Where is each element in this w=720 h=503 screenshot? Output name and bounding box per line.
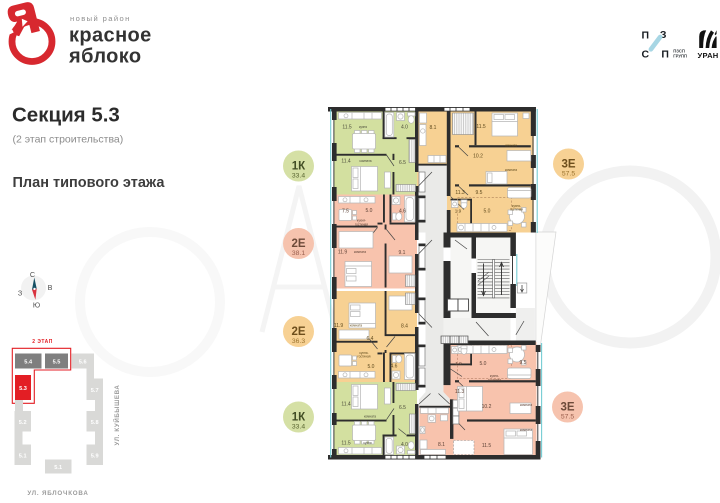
svg-text:4.6: 4.6 [399, 209, 406, 215]
svg-text:1.9: 1.9 [455, 209, 462, 214]
svg-text:6.4: 6.4 [367, 336, 374, 342]
svg-text:гостиная: гостиная [488, 378, 501, 382]
svg-text:5.6: 5.6 [79, 360, 87, 366]
svg-text:яблоко: яблоко [68, 46, 142, 68]
svg-text:9.5: 9.5 [520, 360, 527, 366]
svg-text:5.3: 5.3 [19, 386, 27, 392]
svg-text:1К: 1К [292, 161, 306, 173]
svg-text:5.5: 5.5 [53, 360, 61, 366]
svg-text:5.2: 5.2 [19, 420, 27, 426]
svg-text:1К: 1К [292, 412, 306, 424]
svg-text:УЛ. КУЙБЫШЕВА: УЛ. КУЙБЫШЕВА [113, 385, 121, 446]
svg-text:11.5: 11.5 [341, 441, 351, 447]
svg-text:11.5: 11.5 [482, 443, 492, 449]
svg-text:38.1: 38.1 [292, 250, 305, 257]
svg-text:В: В [48, 283, 53, 292]
svg-text:кухня: кухня [359, 125, 367, 129]
svg-text:11.3: 11.3 [455, 389, 465, 395]
svg-text:10.2: 10.2 [473, 154, 483, 160]
svg-text:11.5: 11.5 [342, 125, 352, 131]
svg-text:С: С [30, 270, 35, 279]
svg-text:комната: комната [354, 250, 366, 254]
svg-text:57.5: 57.5 [562, 171, 575, 178]
svg-text:5.7: 5.7 [91, 388, 99, 394]
svg-text:гостиная: гостиная [358, 355, 371, 359]
svg-text:кухня: кухня [363, 441, 371, 445]
svg-text:10.2: 10.2 [482, 404, 492, 410]
svg-text:новый район: новый район [70, 14, 131, 23]
svg-text:9.1: 9.1 [399, 250, 406, 256]
svg-text:11.3: 11.3 [455, 190, 465, 196]
svg-text:комната: комната [364, 415, 376, 419]
svg-text:6.5: 6.5 [399, 160, 406, 166]
svg-text:5.0: 5.0 [368, 364, 375, 370]
svg-text:33.4: 33.4 [292, 173, 305, 180]
svg-text:11.9: 11.9 [338, 250, 348, 256]
svg-text:гостиная: гостиная [355, 222, 368, 226]
svg-text:УРАН: УРАН [698, 51, 719, 60]
svg-text:1.9: 1.9 [455, 361, 462, 366]
svg-text:комната: комната [520, 428, 532, 432]
svg-text:36.3: 36.3 [292, 338, 305, 345]
svg-text:комната: комната [350, 324, 362, 328]
svg-text:гостиная: гостиная [510, 208, 523, 212]
svg-text:4.0: 4.0 [401, 442, 408, 448]
svg-text:Ю: Ю [33, 301, 40, 310]
svg-text:11.4: 11.4 [341, 159, 351, 165]
svg-text:57.5: 57.5 [561, 414, 574, 421]
svg-text:11.5: 11.5 [476, 124, 486, 130]
svg-text:ГРУПП: ГРУПП [673, 53, 687, 58]
svg-text:комната: комната [520, 403, 532, 407]
svg-text:С: С [642, 49, 650, 61]
svg-text:План типового этажа: План типового этажа [13, 175, 166, 191]
svg-text:33.4: 33.4 [292, 424, 305, 431]
svg-text:2 ЭТАП: 2 ЭТАП [32, 339, 53, 345]
svg-text:5.1: 5.1 [54, 465, 62, 471]
svg-text:комната: комната [505, 168, 517, 172]
svg-text:П: П [661, 49, 669, 61]
svg-text:11.9: 11.9 [334, 323, 344, 329]
svg-text:красное: красное [69, 25, 152, 47]
svg-text:5.9: 5.9 [91, 454, 99, 460]
svg-text:П: П [642, 30, 650, 42]
svg-text:9.5: 9.5 [476, 190, 483, 196]
svg-text:2Е: 2Е [291, 238, 305, 250]
svg-text:Секция 5.3: Секция 5.3 [12, 104, 120, 127]
svg-text:5.0: 5.0 [366, 208, 373, 214]
svg-text:комната: комната [359, 159, 371, 163]
svg-text:4.6: 4.6 [391, 364, 398, 370]
svg-text:6.5: 6.5 [399, 405, 406, 411]
svg-text:5.0: 5.0 [480, 361, 487, 367]
svg-text:(2 этап строительства): (2 этап строительства) [13, 134, 124, 146]
svg-text:5.8: 5.8 [91, 420, 99, 426]
svg-text:5.4: 5.4 [24, 360, 33, 366]
svg-text:2Е: 2Е [291, 326, 305, 338]
svg-text:8.1: 8.1 [430, 125, 437, 131]
svg-text:5.0: 5.0 [484, 209, 491, 215]
svg-text:4.0: 4.0 [401, 125, 408, 131]
svg-text:УЛ. ЯБЛОЧКОВА: УЛ. ЯБЛОЧКОВА [27, 490, 88, 497]
svg-text:8.4: 8.4 [401, 324, 408, 330]
svg-text:5.1: 5.1 [19, 454, 27, 460]
svg-text:11.4: 11.4 [341, 402, 351, 408]
svg-text:7.5: 7.5 [342, 209, 349, 215]
svg-text:комната: комната [505, 144, 517, 148]
svg-text:3Е: 3Е [560, 402, 574, 414]
svg-text:З: З [18, 289, 22, 298]
svg-text:8.1: 8.1 [438, 442, 445, 448]
svg-text:3Е: 3Е [561, 159, 575, 171]
